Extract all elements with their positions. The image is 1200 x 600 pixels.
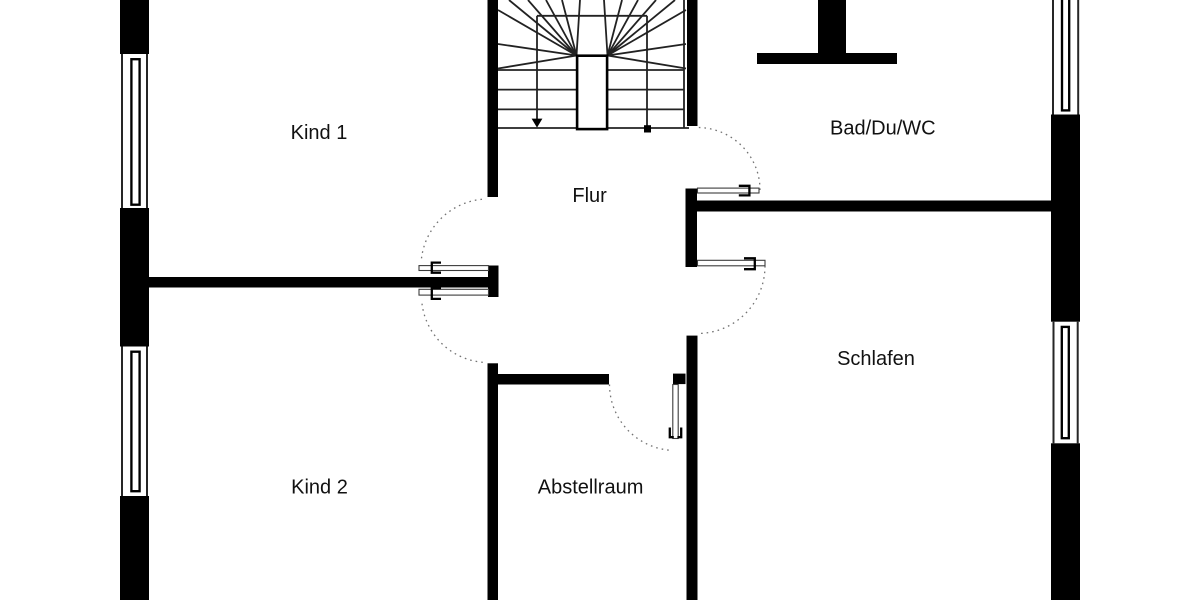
svg-text:Schlafen: Schlafen bbox=[837, 348, 915, 370]
svg-text:Flur: Flur bbox=[572, 185, 607, 207]
svg-text:Abstellraum: Abstellraum bbox=[538, 477, 644, 499]
svg-text:Kind 2: Kind 2 bbox=[291, 476, 348, 498]
svg-text:Bad/Du/WC: Bad/Du/WC bbox=[830, 117, 936, 139]
svg-text:Kind 1: Kind 1 bbox=[291, 122, 348, 144]
